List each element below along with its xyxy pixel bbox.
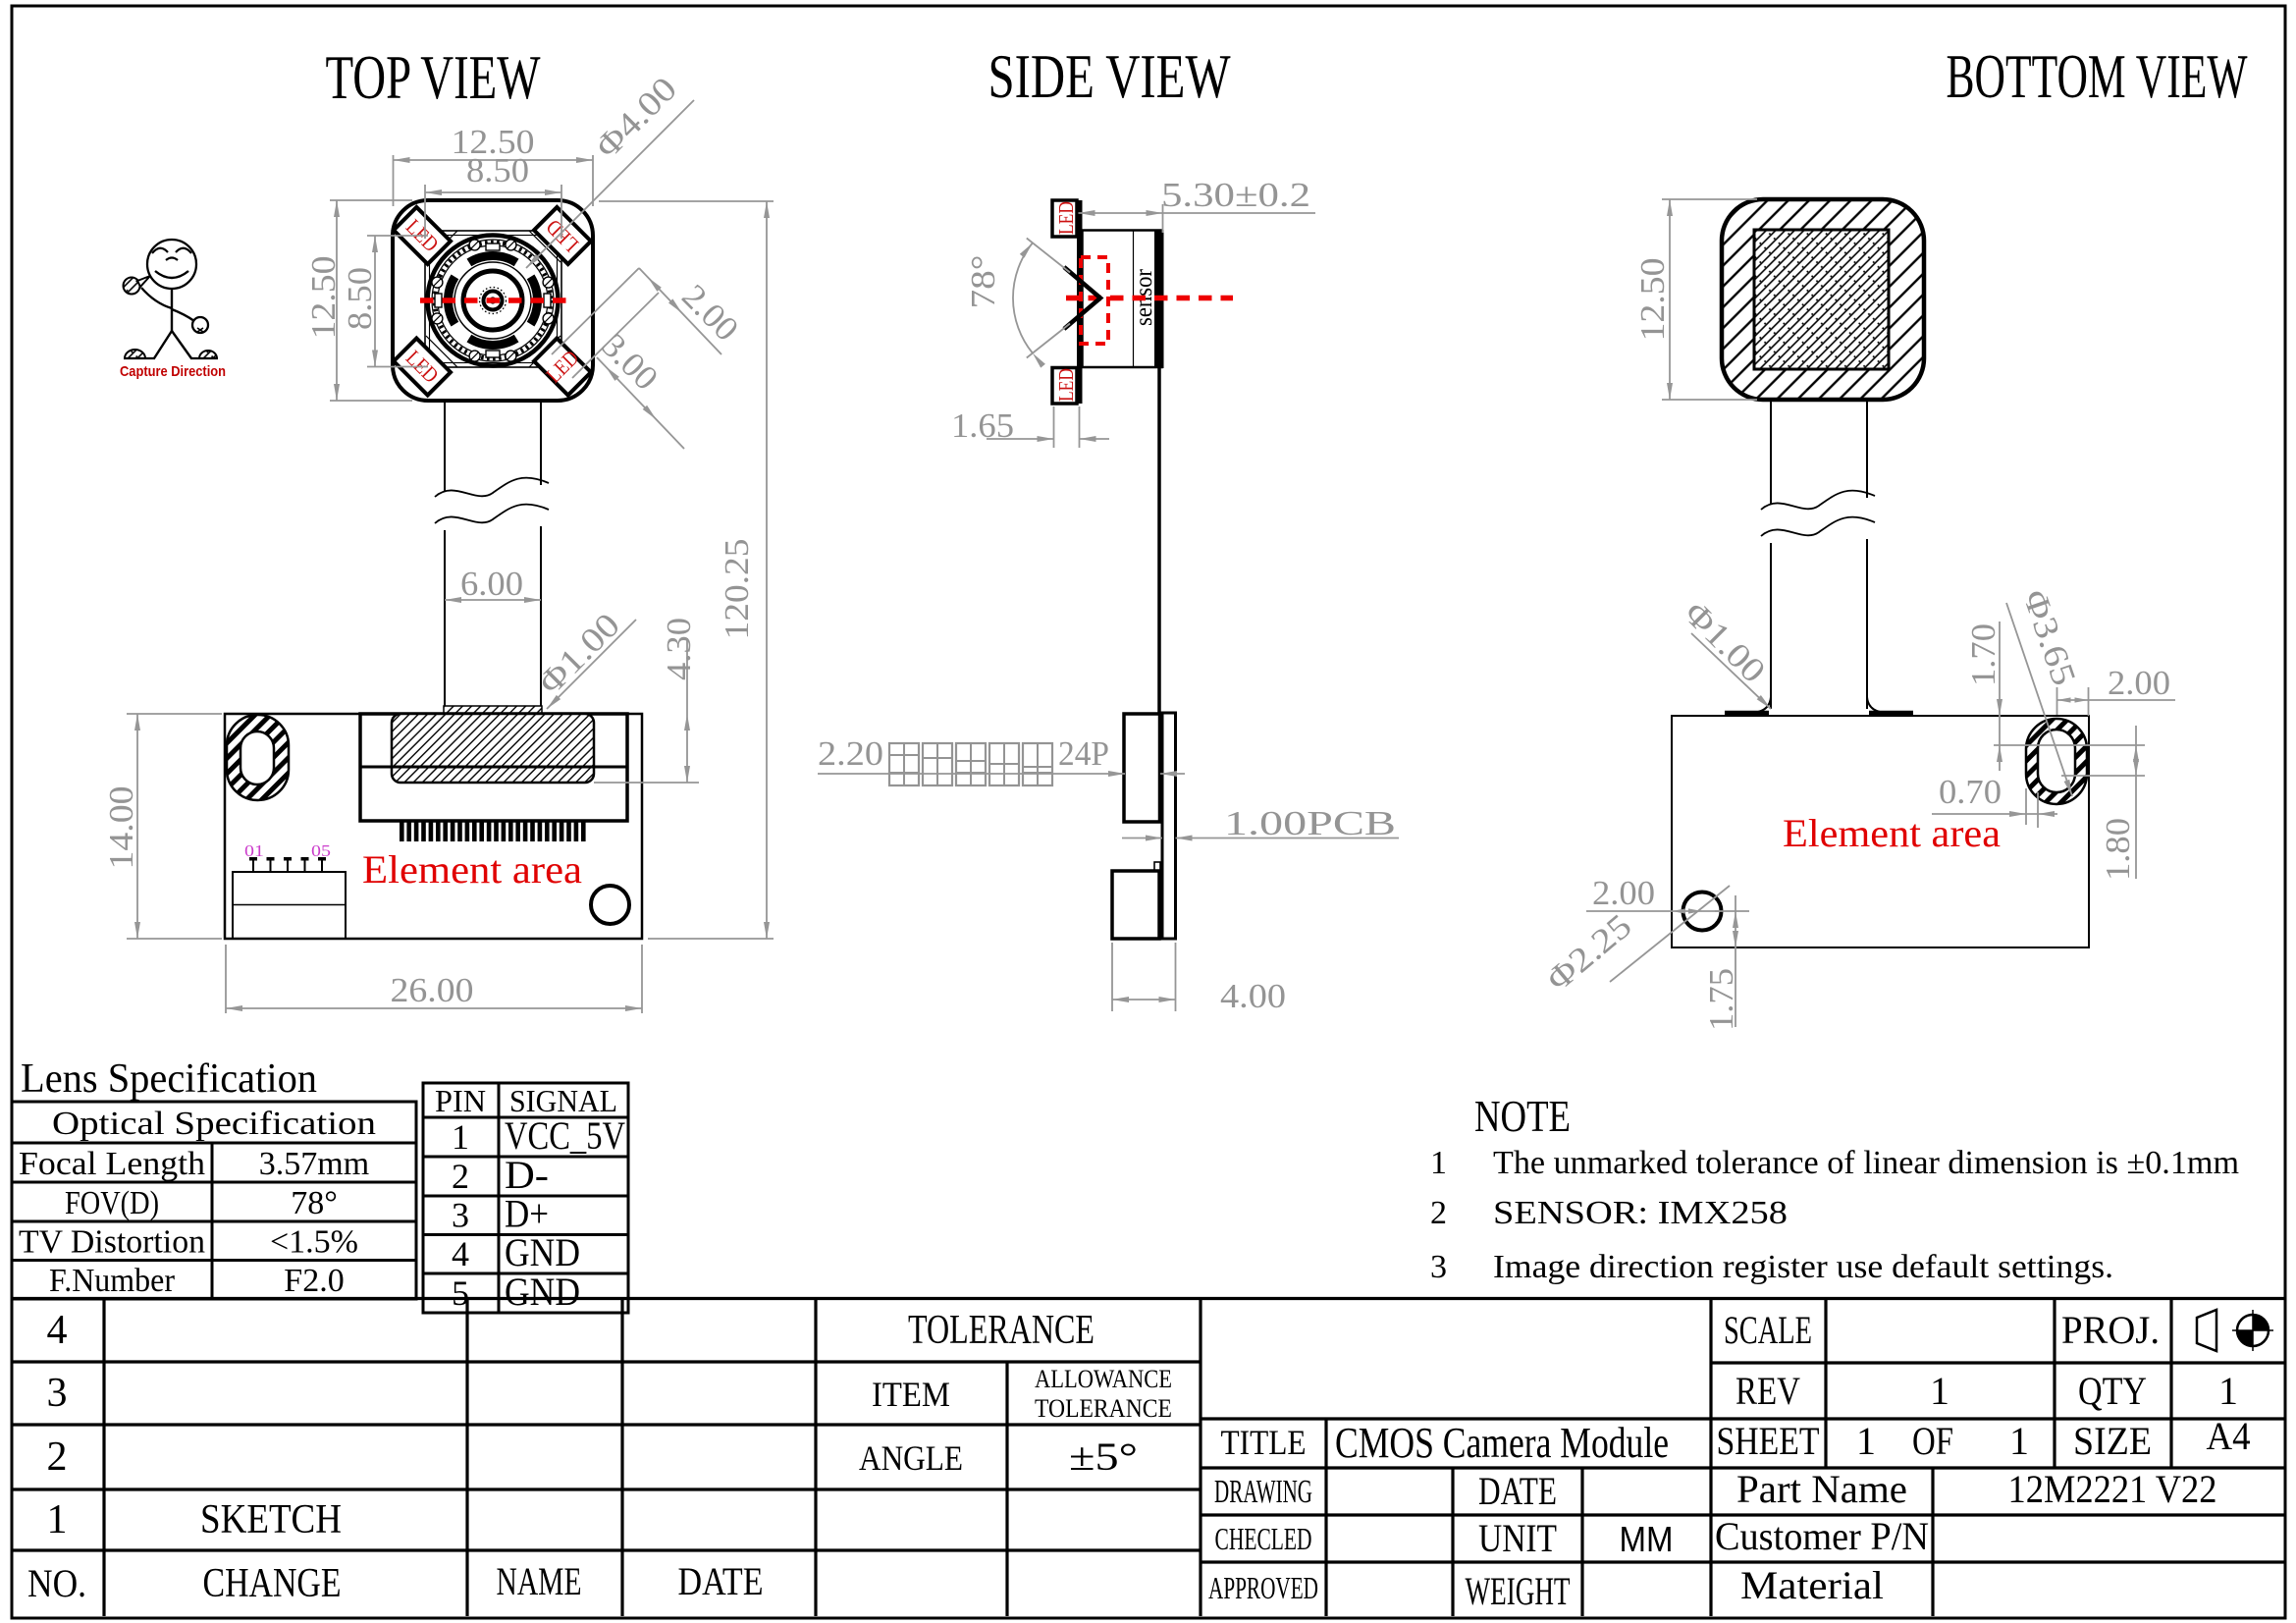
svg-text:1.80: 1.80 bbox=[2099, 818, 2137, 881]
svg-text:14.00: 14.00 bbox=[102, 786, 140, 870]
svg-text:6.00: 6.00 bbox=[460, 565, 523, 603]
svg-text:01: 01 bbox=[244, 841, 264, 860]
svg-text:Focal Length: Focal Length bbox=[19, 1146, 205, 1182]
svg-text:4: 4 bbox=[452, 1234, 469, 1273]
svg-text:SKETCH: SKETCH bbox=[200, 1497, 342, 1542]
svg-text:DATE: DATE bbox=[678, 1559, 764, 1603]
svg-text:D+: D+ bbox=[505, 1192, 549, 1236]
svg-text:8.50: 8.50 bbox=[341, 267, 379, 330]
svg-text:12.50: 12.50 bbox=[1633, 258, 1672, 342]
svg-text:TOP VIEW: TOP VIEW bbox=[326, 42, 541, 112]
svg-text:3: 3 bbox=[452, 1196, 469, 1235]
svg-text:2: 2 bbox=[452, 1157, 469, 1196]
svg-text:PIN: PIN bbox=[435, 1083, 486, 1118]
svg-text:12M2221 V22: 12M2221 V22 bbox=[2008, 1467, 2217, 1511]
svg-text:4.00: 4.00 bbox=[1220, 977, 1286, 1015]
svg-text:D-: D- bbox=[505, 1153, 549, 1197]
svg-text:3: 3 bbox=[1430, 1249, 1447, 1285]
svg-text:1: 1 bbox=[1930, 1369, 1949, 1413]
svg-text:1: 1 bbox=[2218, 1369, 2238, 1413]
svg-text:DATE: DATE bbox=[1478, 1469, 1557, 1513]
svg-text:TITLE: TITLE bbox=[1221, 1423, 1307, 1462]
svg-text:1.00PCB: 1.00PCB bbox=[1224, 804, 1396, 842]
svg-text:3: 3 bbox=[47, 1371, 68, 1416]
svg-text:GND: GND bbox=[505, 1270, 580, 1314]
svg-text:Element area: Element area bbox=[1783, 811, 2001, 855]
svg-text:1.70: 1.70 bbox=[1964, 623, 2002, 686]
svg-text:TOLERANCE: TOLERANCE bbox=[1035, 1394, 1172, 1423]
svg-text:1: 1 bbox=[2009, 1419, 2029, 1463]
svg-text:Part Name: Part Name bbox=[1736, 1467, 1907, 1511]
svg-text:Lens Specification: Lens Specification bbox=[21, 1056, 317, 1102]
svg-text:78°: 78° bbox=[291, 1185, 338, 1221]
svg-text:2.00: 2.00 bbox=[2108, 664, 2170, 702]
svg-text:NAME: NAME bbox=[497, 1559, 582, 1603]
svg-text:26.00: 26.00 bbox=[391, 971, 474, 1009]
svg-text:NO.: NO. bbox=[27, 1561, 86, 1605]
svg-text:WEIGHT: WEIGHT bbox=[1466, 1569, 1571, 1613]
svg-text:1: 1 bbox=[1856, 1419, 1876, 1463]
svg-text:ANGLE: ANGLE bbox=[859, 1438, 963, 1478]
svg-text:Element area: Element area bbox=[362, 847, 582, 892]
svg-text:F2.0: F2.0 bbox=[284, 1263, 344, 1299]
svg-text:SENSOR: IMX258: SENSOR: IMX258 bbox=[1493, 1195, 1788, 1231]
svg-text:CMOS Camera Module: CMOS Camera Module bbox=[1335, 1419, 1669, 1467]
svg-text:4.30: 4.30 bbox=[660, 618, 698, 680]
svg-text:VCC_5V: VCC_5V bbox=[505, 1113, 625, 1158]
svg-text:SHEET: SHEET bbox=[1717, 1419, 1820, 1463]
svg-text:±5°: ±5° bbox=[1069, 1434, 1138, 1479]
svg-text:SIZE: SIZE bbox=[2073, 1419, 2152, 1463]
svg-text:1: 1 bbox=[452, 1117, 469, 1157]
svg-text:ITEM: ITEM bbox=[872, 1375, 950, 1414]
svg-text:1: 1 bbox=[1430, 1145, 1447, 1181]
svg-text:Optical Specification: Optical Specification bbox=[52, 1106, 376, 1142]
svg-text:1.65: 1.65 bbox=[951, 406, 1014, 445]
svg-text:DRAWING: DRAWING bbox=[1214, 1474, 1312, 1510]
svg-text:2: 2 bbox=[47, 1434, 68, 1480]
svg-text:Material: Material bbox=[1740, 1563, 1884, 1607]
svg-text:1.75: 1.75 bbox=[1702, 968, 1740, 1031]
svg-text:BOTTOM VIEW: BOTTOM VIEW bbox=[1947, 41, 2248, 111]
svg-text:Capture Direction: Capture Direction bbox=[120, 363, 226, 380]
svg-text:NOTE: NOTE bbox=[1474, 1091, 1571, 1141]
svg-text:The unmarked tolerance of line: The unmarked tolerance of linear dimensi… bbox=[1493, 1145, 2239, 1181]
svg-text:2.20: 2.20 bbox=[818, 734, 883, 773]
svg-text:12.50: 12.50 bbox=[304, 256, 343, 340]
svg-text:CHECLED: CHECLED bbox=[1215, 1521, 1312, 1556]
svg-text:QTY: QTY bbox=[2078, 1369, 2147, 1413]
svg-text:4: 4 bbox=[47, 1308, 68, 1353]
svg-text:Customer P/N: Customer P/N bbox=[1715, 1514, 1929, 1558]
svg-text:FOV(D): FOV(D) bbox=[65, 1185, 159, 1221]
svg-text:A4: A4 bbox=[2207, 1414, 2251, 1458]
svg-text:LED: LED bbox=[1054, 201, 1078, 235]
svg-text:MM: MM bbox=[1620, 1519, 1674, 1559]
svg-text:0.70: 0.70 bbox=[1939, 773, 2002, 811]
svg-text:CHANGE: CHANGE bbox=[203, 1561, 342, 1606]
svg-text:78°: 78° bbox=[964, 255, 1002, 309]
svg-text:UNIT: UNIT bbox=[1478, 1516, 1557, 1560]
svg-text:F.Number: F.Number bbox=[49, 1263, 176, 1299]
svg-text:SCALE: SCALE bbox=[1724, 1308, 1812, 1352]
svg-text:TOLERANCE: TOLERANCE bbox=[908, 1308, 1095, 1353]
svg-text:OF: OF bbox=[1912, 1419, 1953, 1463]
svg-text:2: 2 bbox=[1430, 1195, 1447, 1231]
svg-text:APPROVED: APPROVED bbox=[1208, 1570, 1318, 1605]
svg-text:1: 1 bbox=[47, 1497, 68, 1542]
svg-text:24P: 24P bbox=[1058, 734, 1109, 773]
svg-text:GND: GND bbox=[505, 1230, 580, 1274]
svg-text:PROJ.: PROJ. bbox=[2061, 1308, 2160, 1352]
svg-text:120.25: 120.25 bbox=[718, 539, 756, 640]
svg-text:2.00: 2.00 bbox=[1592, 874, 1655, 912]
svg-text:8.50: 8.50 bbox=[466, 151, 529, 189]
svg-text:SIDE VIEW: SIDE VIEW bbox=[988, 41, 1231, 111]
svg-text:LED: LED bbox=[1054, 368, 1078, 402]
svg-text:5.30±0.2: 5.30±0.2 bbox=[1161, 176, 1310, 214]
svg-text:REV: REV bbox=[1735, 1369, 1800, 1413]
svg-text:3.57mm: 3.57mm bbox=[259, 1146, 369, 1182]
svg-text:<1.5%: <1.5% bbox=[270, 1224, 358, 1261]
svg-text:05: 05 bbox=[311, 841, 331, 860]
svg-text:TV Distortion: TV Distortion bbox=[19, 1224, 205, 1261]
svg-text:ALLOWANCE: ALLOWANCE bbox=[1035, 1365, 1172, 1393]
svg-text:Image direction register use d: Image direction register use default set… bbox=[1493, 1249, 2113, 1285]
